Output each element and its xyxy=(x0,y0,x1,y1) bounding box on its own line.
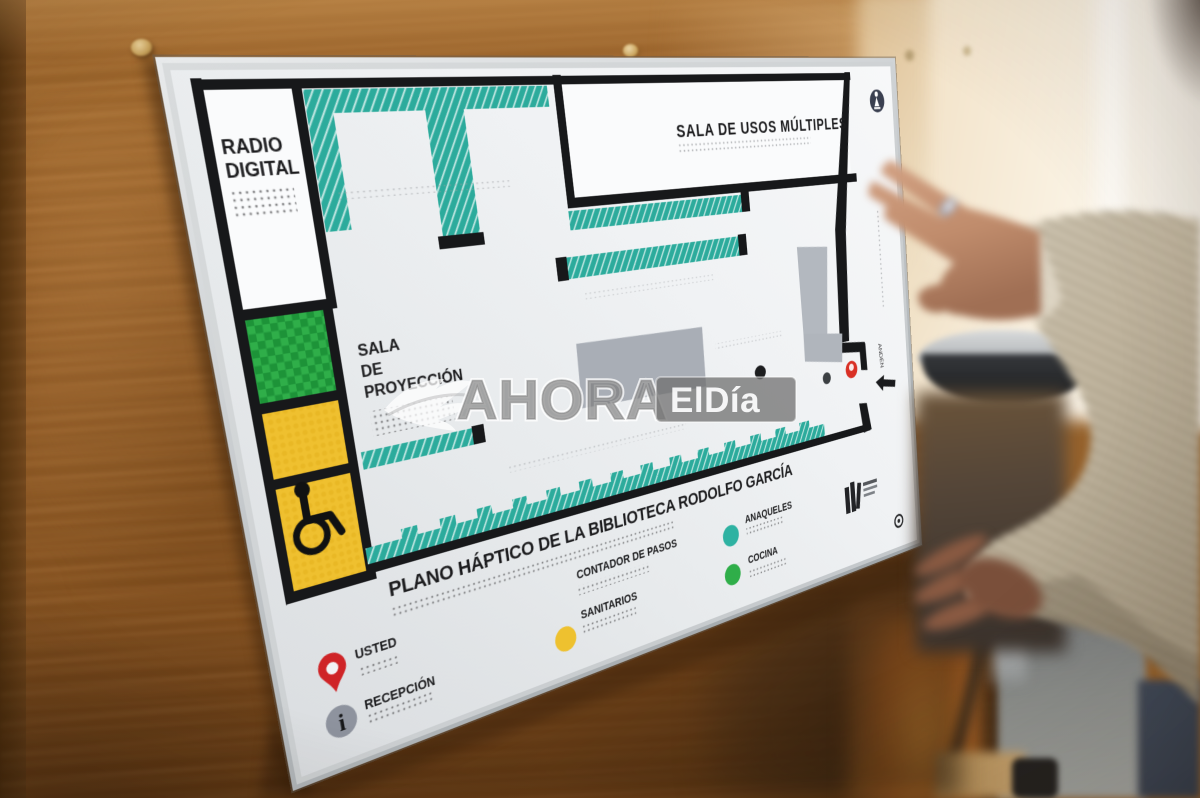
svg-text:ElDía: ElDía xyxy=(670,381,760,420)
svg-text:AHORA: AHORA xyxy=(457,368,667,431)
svg-text:RADIO: RADIO xyxy=(219,134,284,159)
svg-text:SALA: SALA xyxy=(356,335,401,361)
svg-text:ANDÉN: ANDÉN xyxy=(877,343,885,369)
svg-text:DIGITAL: DIGITAL xyxy=(224,156,301,182)
